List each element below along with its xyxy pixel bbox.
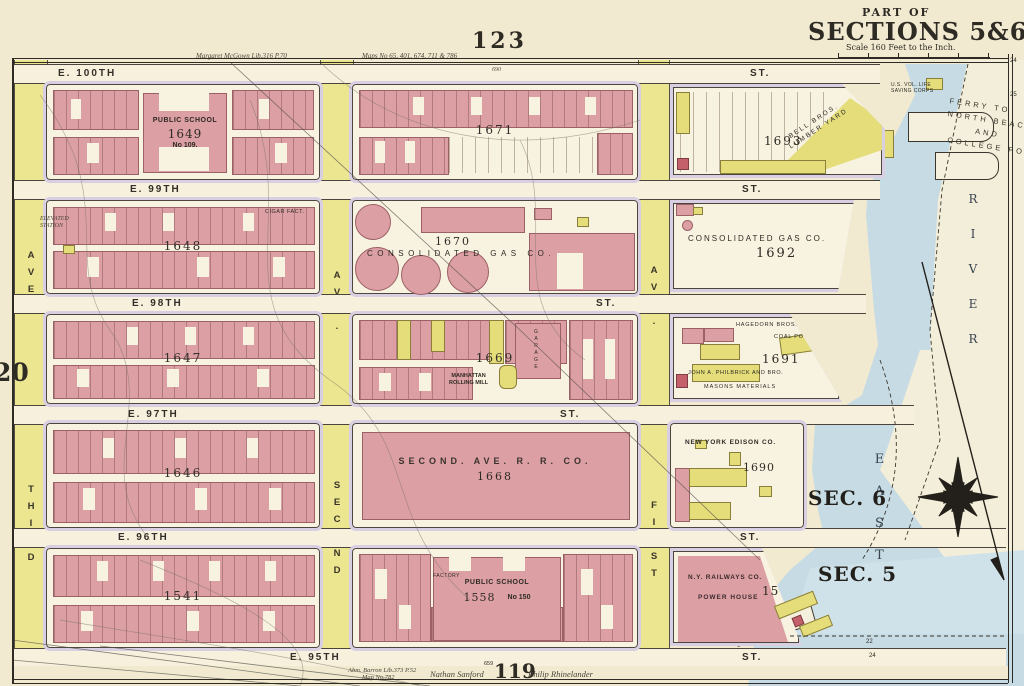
coal-pocket-label: COAL POCKET <box>774 334 822 340</box>
block-1647: 1647 <box>46 314 320 404</box>
philbrick-building-1 <box>682 328 704 344</box>
left-plate-number: 20 <box>0 358 29 387</box>
footer-deed-ref: Abm. Barron Lib.373 P.52 Map No.782 <box>348 667 416 681</box>
consolidated-gas-label: CONSOLIDATED GAS CO. <box>367 249 555 258</box>
second-ave-rr-label: SECOND. AVE. R. R. CO. <box>353 456 637 466</box>
ps109-number: No 109. <box>141 142 229 149</box>
second-avenue: AVE. SECOND <box>320 60 354 680</box>
edison-frame-shed-2 <box>759 486 772 497</box>
map-border-top <box>12 58 1008 63</box>
block-1692-consolidated-gas: CONSOLIDATED GAS CO. 1692 <box>670 200 860 292</box>
gas-tank-small <box>355 204 391 240</box>
right-margin-24: 24 <box>1010 58 1017 64</box>
block-1691-number: 1691 <box>762 352 801 366</box>
block-1670-number: 1670 <box>435 235 471 248</box>
street-e-99th-label: E. 99TH <box>130 184 181 195</box>
lumber-yard-shed-left <box>676 92 690 134</box>
ps109-block-number: 1649 <box>141 127 229 141</box>
consolidated-gas-1692-label: CONSOLIDATED GAS CO. <box>688 234 826 243</box>
block-1671-number: 1671 <box>353 123 637 137</box>
block-1669-number: 1669 <box>353 351 637 365</box>
block-1648-number: 1648 <box>47 239 319 253</box>
right-margin-25: 25 <box>1010 92 1017 98</box>
block-1690-ny-edison: NEW YORK EDISON CO. 1690 <box>670 423 804 528</box>
footer-owner-left: Nathan Sanford <box>430 669 484 679</box>
block-1646: 1646 <box>46 423 320 528</box>
street-e-100th: E. 100TH ST. 690 <box>12 64 880 84</box>
header-scale-text: Scale 160 Feet to the Inch. <box>846 43 955 52</box>
ny-edison-label: NEW YORK EDISON CO. <box>685 439 776 446</box>
bottom-right-24: 24 <box>869 653 876 659</box>
street-e-97th-st: ST. <box>560 409 580 420</box>
small-brick-shed <box>676 374 688 388</box>
hagedorn-label: HAGEDORN BROS. <box>736 322 798 328</box>
gas-works-building-top <box>421 207 525 233</box>
gas-co-frame-shed <box>693 207 703 215</box>
street-e-95th-label: E. 95TH <box>290 652 341 663</box>
river-word-east: EAST <box>872 452 887 580</box>
header-sections: SECTIONS 5&6 <box>808 17 1024 46</box>
street-e-97th: E. 97TH ST. <box>12 405 914 425</box>
masons-shed-L <box>700 344 740 360</box>
ferry-pier-lower <box>935 152 999 180</box>
street-dim-690: 690 <box>492 67 501 73</box>
first-avenue: AVE. FIRST <box>638 60 670 680</box>
block-1691: HAGEDORN BROS. COAL POCKET 1691 JOHN A. … <box>670 314 842 402</box>
block-1649: PUBLIC SCHOOL 1649 No 109. <box>46 84 320 180</box>
block-1670-consolidated-gas: 1670 CONSOLIDATED GAS CO. <box>352 200 638 294</box>
power-house-label: POWER HOUSE <box>698 594 758 601</box>
block-1646-number: 1646 <box>47 466 319 480</box>
street-e-98th: E. 98TH ST. <box>12 294 866 314</box>
street-e-96th: E. 96TH ST. <box>12 528 1006 548</box>
block-1668-number: 1668 <box>353 470 637 483</box>
bottom-right-22: 22 <box>866 639 873 645</box>
block-1647-number: 1647 <box>47 351 319 365</box>
masons-materials-label: MASONS MATERIALS <box>704 384 776 390</box>
ny-railways-label: N.Y. RAILWAYS CO. <box>688 574 762 581</box>
block-1693: 1693 BELL BROS. LUMBER YARD <box>670 84 885 178</box>
edison-brick-building <box>675 468 690 522</box>
philbrick-building-2 <box>704 328 734 342</box>
ps109-name: PUBLIC SCHOOL <box>141 117 229 124</box>
gas-works-crossed-shed <box>534 208 552 220</box>
street-e-97th-label: E. 97TH <box>128 409 179 420</box>
footer-dim: 659 <box>484 661 493 667</box>
block-1558-public-school-150: FACTORY PUBLIC SCHOOL 1558 No 150 <box>352 548 638 648</box>
lumber-yard-strip <box>720 160 826 174</box>
block-1668-second-ave-rr: SECOND. AVE. R. R. CO. 1668 <box>352 423 638 528</box>
river-word-river: RIVER <box>966 192 980 367</box>
street-e-99th: E. 99TH ST. <box>12 180 880 200</box>
block-1558-number: 1558 <box>464 591 496 604</box>
frame-shed-round <box>499 365 517 389</box>
gas-co-small-building <box>676 204 694 216</box>
block-1541: 1541 <box>46 548 320 648</box>
page-number-top: 123 <box>472 28 527 54</box>
atlas-map: 123 PART OF SECTIONS 5&6 Scale 160 Feet … <box>0 0 1024 686</box>
section-6-label: SEC. 6 <box>808 486 887 510</box>
street-e-98th-label: E. 98TH <box>132 298 183 309</box>
garage-label: GARAGE <box>533 329 539 371</box>
elevated-station-label: ELEVATED STATION <box>40 216 69 230</box>
gas-tank-2 <box>401 255 441 295</box>
cigar-factory-label: CIGAR FACT. <box>265 209 304 215</box>
footer-owner-right: Philip Rhinelander <box>528 669 593 679</box>
block-1692-number: 1692 <box>756 246 797 261</box>
manhattan-rolling-mill-label: MANHATTAN ROLLING MILL <box>449 373 488 387</box>
block-1669: 1669 MANHATTAN ROLLING MILL GARAGE <box>352 314 638 404</box>
street-e-96th-label: E. 96TH <box>118 532 169 543</box>
block-1671: 1671 <box>352 84 638 180</box>
edison-frame-building-2 <box>689 502 731 520</box>
frame-tenement-2 <box>431 320 445 352</box>
map-border-right <box>1008 54 1013 683</box>
edison-frame-shed-1 <box>729 452 741 466</box>
block-1690-number: 1690 <box>743 461 775 474</box>
life-saving-label: U.S. VOL. LIFE SAVING CORPS <box>891 82 934 94</box>
philbrick-label: JOHN A. PHILBRICK AND BRO. <box>688 370 783 376</box>
street-e-100th-label: E. 100TH <box>58 68 116 79</box>
gas-co-small-tank <box>682 220 693 231</box>
block-1648: 1648 CIGAR FACT. <box>46 200 320 294</box>
street-e-96th-st: ST. <box>740 532 760 543</box>
block-1541-number: 1541 <box>47 589 319 603</box>
street-e-95th-st: ST. <box>742 652 762 663</box>
section-5-label: SEC. 5 <box>818 562 897 586</box>
ps150-number: No 150 <box>508 591 531 604</box>
ps150-name: PUBLIC SCHOOL <box>437 579 557 586</box>
small-red-building <box>677 158 689 170</box>
street-e-99th-st: ST. <box>742 184 762 195</box>
edison-frame-building-1 <box>689 468 747 487</box>
gas-works-frame-shed <box>577 217 589 227</box>
street-e-98th-st: ST. <box>596 298 616 309</box>
third-avenue-name-label: THIRD <box>26 484 37 569</box>
street-e-100th-st: ST. <box>750 68 770 79</box>
